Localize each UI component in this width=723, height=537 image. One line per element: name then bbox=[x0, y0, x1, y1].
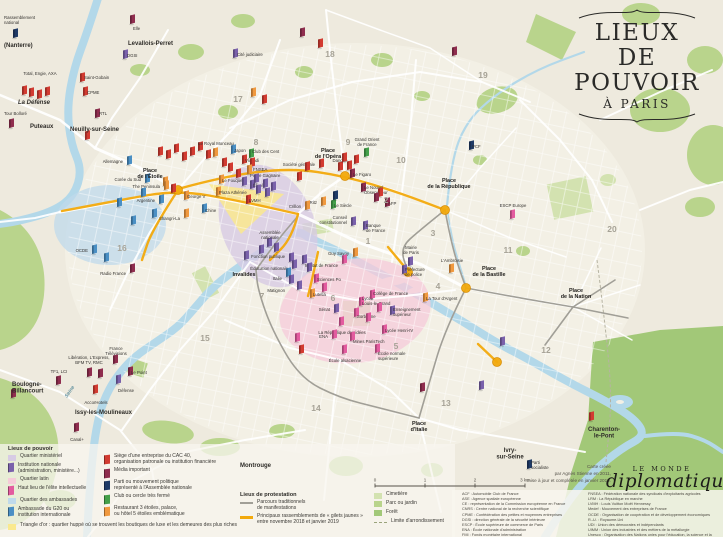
swatch-quartier-ministeriel bbox=[8, 455, 16, 461]
svg-text:AFP: AFP bbox=[388, 201, 396, 206]
svg-text:Elle: Elle bbox=[133, 26, 141, 31]
gilets-jaunes-dot bbox=[493, 358, 502, 367]
gilets-jaunes-dot bbox=[441, 206, 450, 215]
legend-item: Parti ou mouvement politique représenté … bbox=[104, 480, 236, 492]
title-ornament-bottom bbox=[577, 112, 697, 125]
legend-item: Siège d'une entreprise du CAC 40, organi… bbox=[104, 454, 236, 466]
svg-text:16: 16 bbox=[117, 243, 127, 253]
svg-text:Ritz: Ritz bbox=[310, 200, 317, 205]
svg-text:Chine: Chine bbox=[205, 208, 217, 213]
svg-text:Puteaux: Puteaux bbox=[30, 124, 54, 130]
svg-text:Mairiede Paris: Mairiede Paris bbox=[403, 245, 419, 255]
svg-text:Cité judiciaire: Cité judiciaire bbox=[237, 52, 263, 57]
swatch-restaurant bbox=[104, 506, 110, 516]
svg-text:Le Royal Monceau: Le Royal Monceau bbox=[198, 141, 234, 146]
swatch-institution-nationale bbox=[8, 463, 14, 473]
svg-text:Levallois-Perret: Levallois-Perret bbox=[128, 41, 173, 47]
gilets-jaunes-dot bbox=[341, 172, 350, 181]
svg-text:14: 14 bbox=[311, 403, 321, 413]
svg-text:PCF: PCF bbox=[472, 144, 481, 149]
svg-text:LVMH: LVMH bbox=[249, 198, 261, 203]
swatch-cimetiere bbox=[374, 493, 382, 499]
svg-text:Lycée Henri-IV: Lycée Henri-IV bbox=[385, 328, 413, 333]
svg-text:Montrouge: Montrouge bbox=[240, 463, 272, 469]
monde-diplomatique-logo: LE MONDE diplomatique bbox=[606, 465, 718, 492]
svg-text:2: 2 bbox=[384, 195, 389, 205]
title-line1: LIEUX bbox=[557, 21, 717, 46]
svg-text:Saint-Gobain: Saint-Gobain bbox=[84, 75, 110, 80]
abbreviations-column-2: FNSEA : Fédération nationale des syndica… bbox=[588, 492, 721, 537]
swatch-cac40 bbox=[104, 454, 110, 464]
swatch-parc bbox=[374, 501, 382, 507]
swatch-quartier-ambassades bbox=[8, 498, 16, 504]
svg-text:Assembléenationale: Assembléenationale bbox=[259, 230, 281, 240]
legend-item: Quartier ministériel bbox=[8, 454, 104, 461]
svg-text:(Nanterre): (Nanterre) bbox=[4, 43, 33, 49]
svg-text:CPME: CPME bbox=[87, 90, 100, 95]
swatch-gilets-jaunes bbox=[240, 516, 253, 519]
legend-power-title: Lieux de pouvoir bbox=[8, 446, 104, 452]
svg-text:19: 19 bbox=[478, 70, 488, 80]
svg-text:Invalides: Invalides bbox=[232, 272, 255, 278]
legend-item: Club ou cercle très fermé bbox=[104, 494, 236, 504]
svg-text:TF1, LCI: TF1, LCI bbox=[51, 369, 68, 374]
svg-text:École alsacienne: École alsacienne bbox=[329, 358, 362, 363]
legend-occupation-sol: Cimetière Parc ou jardin Forêt Limite d'… bbox=[374, 492, 449, 527]
svg-text:7: 7 bbox=[260, 291, 265, 301]
legend-protest-title: Lieux de protestation bbox=[240, 492, 368, 498]
svg-text:Shangri-La: Shangri-La bbox=[159, 216, 181, 221]
svg-text:Le Figaro: Le Figaro bbox=[353, 172, 372, 177]
svg-text:Plaza Athénée: Plaza Athénée bbox=[219, 190, 247, 195]
swatch-media bbox=[104, 468, 110, 478]
legend-item: Quartier latin bbox=[8, 477, 104, 484]
svg-text:Sénat: Sénat bbox=[319, 307, 331, 312]
abbreviations-column-1: ACF : Automobile Club de France ASE : Ag… bbox=[462, 492, 586, 537]
swatch-triangle-dor bbox=[8, 524, 16, 530]
title-line3: À PARIS bbox=[557, 97, 717, 111]
map-title: LIEUX DE POUVOIR À PARIS bbox=[557, 6, 717, 126]
svg-text:Boulogne-Billancourt: Boulogne-Billancourt bbox=[12, 382, 43, 394]
legend-item: Principaux rassemblements de « gilets ja… bbox=[240, 514, 368, 526]
legend-item: Forêt bbox=[374, 510, 449, 517]
swatch-foret bbox=[374, 510, 382, 516]
svg-text:3: 3 bbox=[431, 228, 436, 238]
title-ornament-top bbox=[577, 7, 697, 20]
svg-text:ENA: ENA bbox=[319, 334, 328, 339]
legend-item: Cimetière bbox=[374, 492, 449, 499]
svg-text:Argentine: Argentine bbox=[137, 198, 156, 203]
legend-item: Haut lieu de l'élite intellectuelle bbox=[8, 486, 104, 496]
svg-text:Neuilly-sur-Seine: Neuilly-sur-Seine bbox=[70, 127, 120, 133]
swatch-parcours-manifestations bbox=[240, 502, 253, 504]
gilets-jaunes-dot bbox=[462, 284, 471, 293]
svg-text:5: 5 bbox=[394, 341, 399, 351]
svg-text:Sciences Po: Sciences Po bbox=[317, 277, 341, 282]
svg-text:Matignon: Matignon bbox=[267, 288, 285, 293]
legend-item: Restaurant 3 étoiles, palace, ou hôtel 5… bbox=[104, 506, 236, 518]
svg-text:OCDE: OCDE bbox=[76, 248, 89, 253]
map-credit: Carte créée par Agnès Stienne en 2011, m… bbox=[491, 464, 611, 485]
swatch-club bbox=[104, 494, 110, 504]
svg-text:Total, Engie, AXA: Total, Engie, AXA bbox=[23, 71, 56, 76]
svg-text:12: 12 bbox=[541, 345, 551, 355]
legend-item: Limite d'arrondissement bbox=[374, 519, 449, 525]
legend-item: Ambassade du G20 ou institution internat… bbox=[8, 507, 104, 519]
swatch-elite-intellectuelle bbox=[8, 486, 14, 496]
svg-text:Club des Cent: Club des Cent bbox=[252, 149, 280, 154]
svg-text:Grand Orientde France: Grand Orientde France bbox=[355, 137, 381, 147]
svg-text:11: 11 bbox=[504, 245, 513, 255]
swatch-ambassade-g20 bbox=[8, 507, 14, 517]
svg-text:8: 8 bbox=[254, 137, 259, 147]
svg-text:George V: George V bbox=[187, 194, 206, 199]
svg-text:1: 1 bbox=[366, 236, 371, 246]
map-screenshot: Total, Engie, AXASaint-GobainCPMETour Bo… bbox=[0, 0, 723, 537]
swatch-limite-arrondissement bbox=[374, 522, 387, 523]
svg-text:Collège de France: Collège de France bbox=[373, 291, 409, 296]
svg-text:La Tour d'Argent: La Tour d'Argent bbox=[426, 296, 458, 301]
svg-text:Le Point: Le Point bbox=[131, 370, 148, 375]
legend-item: Institution nationale (administration, m… bbox=[8, 463, 104, 475]
svg-text:L'Ambroisie: L'Ambroisie bbox=[441, 258, 464, 263]
svg-text:La Défense: La Défense bbox=[18, 100, 51, 106]
svg-text:Placed'Italie: Placed'Italie bbox=[411, 421, 428, 433]
svg-text:FNSEA: FNSEA bbox=[253, 167, 267, 172]
svg-text:ESCP Europe: ESCP Europe bbox=[500, 203, 527, 208]
svg-text:Radio France: Radio France bbox=[100, 271, 126, 276]
svg-text:Éducation nationale: Éducation nationale bbox=[250, 266, 288, 271]
svg-text:9: 9 bbox=[346, 137, 351, 147]
svg-text:The Peninsula: The Peninsula bbox=[133, 184, 161, 189]
svg-text:RTL: RTL bbox=[99, 111, 108, 116]
swatch-parti-politique bbox=[104, 480, 110, 490]
svg-text:Canal+: Canal+ bbox=[70, 437, 84, 442]
svg-text:Allemagne: Allemagne bbox=[103, 159, 124, 164]
svg-text:20: 20 bbox=[607, 224, 617, 234]
swatch-quartier-latin bbox=[8, 478, 16, 484]
svg-text:6: 6 bbox=[331, 293, 336, 303]
svg-text:Italie: Italie bbox=[273, 276, 283, 281]
logo-diplomatique: diplomatique bbox=[606, 471, 718, 492]
svg-text:13: 13 bbox=[441, 398, 451, 408]
svg-text:Le Siècle: Le Siècle bbox=[334, 203, 352, 208]
svg-text:Crillon: Crillon bbox=[289, 204, 302, 209]
svg-text:4: 4 bbox=[436, 281, 441, 291]
svg-text:Mines ParisTech: Mines ParisTech bbox=[353, 339, 385, 344]
legend-item: Média important bbox=[104, 468, 236, 478]
svg-text:Fonction publique: Fonction publique bbox=[251, 254, 286, 259]
svg-text:Issy-les-Moulineaux: Issy-les-Moulineaux bbox=[75, 410, 133, 416]
svg-text:17: 17 bbox=[233, 94, 243, 104]
svg-text:Japon: Japon bbox=[234, 148, 246, 153]
legend-lieux-de-pouvoir: Lieux de pouvoir Quartier ministériel In… bbox=[8, 446, 104, 521]
legend-item: Quartier des ambassades bbox=[8, 498, 104, 505]
svg-text:10: 10 bbox=[396, 155, 406, 165]
svg-text:Défense: Défense bbox=[118, 388, 135, 393]
legend-lieux-de-pouvoir-col2: Siège d'une entreprise du CAC 40, organi… bbox=[104, 454, 236, 520]
svg-text:Société générale: Société générale bbox=[283, 162, 316, 167]
svg-text:DGSI: DGSI bbox=[127, 53, 138, 58]
legend-lieux-de-protestation: Lieux de protestation Parcours tradition… bbox=[240, 492, 368, 528]
legend-item: Parc ou jardin bbox=[374, 501, 449, 508]
svg-text:15: 15 bbox=[200, 333, 210, 343]
legend-item: Parcours traditionnels de manifestations bbox=[240, 500, 368, 512]
svg-text:Tour Bolloré: Tour Bolloré bbox=[4, 111, 28, 116]
svg-text:18: 18 bbox=[325, 49, 335, 59]
title-line2: DE POUVOIR bbox=[557, 46, 717, 96]
svg-text:AccorHotels: AccorHotels bbox=[84, 400, 107, 405]
